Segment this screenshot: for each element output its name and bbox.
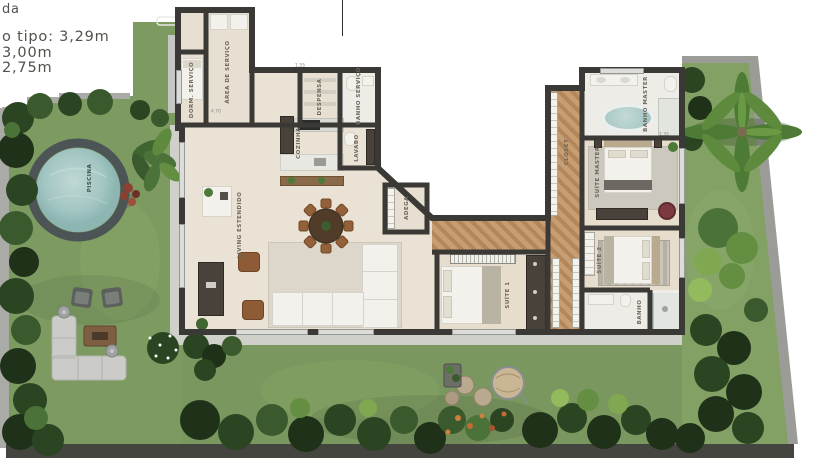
nightstand xyxy=(654,139,662,148)
accent-chair xyxy=(658,202,676,220)
flower-bush xyxy=(147,332,179,364)
label-banho-suite2: BANHO xyxy=(637,300,643,325)
floorplan-scene: DORM. SERVIÇO ÁREA DE SERVIÇO DESPENSA B… xyxy=(0,0,826,460)
label-banho-servico: BANHO SERVIÇO xyxy=(356,67,362,125)
master-desk xyxy=(596,208,648,220)
sofa xyxy=(272,292,364,326)
sofa-seam xyxy=(362,271,398,272)
washer-icon xyxy=(210,14,228,30)
legend-line-2: o tipo: 3,29m xyxy=(2,30,110,46)
shower-drain xyxy=(662,306,668,312)
label-living: LIVING ESTENDIDO xyxy=(237,192,243,259)
plant-icon xyxy=(288,177,295,184)
lavabo-vanity xyxy=(366,129,375,165)
window xyxy=(679,148,685,204)
flower-planter xyxy=(444,364,461,387)
pillow xyxy=(608,150,626,158)
lounge-chair xyxy=(71,287,93,309)
plant-icon xyxy=(204,188,213,197)
wardrobe-knob xyxy=(533,316,537,320)
label-closet: CLOSET xyxy=(564,139,570,166)
headboard xyxy=(652,236,660,284)
closet-shelves xyxy=(550,92,558,216)
legend-line-3: 3,00m xyxy=(2,46,110,62)
lounge-chair xyxy=(101,287,123,309)
label-dorm-servico: DORM. SERVIÇO xyxy=(189,62,195,118)
label-despensa: DESPENSA xyxy=(317,79,323,116)
dimension-text: 1.35 xyxy=(659,133,669,138)
suite1-louver-closet xyxy=(450,254,516,264)
bed-throw xyxy=(482,266,501,324)
dimension-text: 1.55 xyxy=(295,64,305,69)
pool-water xyxy=(36,148,120,232)
window xyxy=(236,329,308,335)
label-banho-master: BANHO MASTER xyxy=(643,76,649,132)
label-area-servico: ÁREA DE SERVIÇO xyxy=(225,40,231,103)
wine-shelf xyxy=(387,188,395,229)
toilet-icon xyxy=(664,76,677,92)
dryer-icon xyxy=(230,14,248,30)
armchair xyxy=(242,300,264,320)
label-adega: ADEGA xyxy=(404,196,410,220)
window xyxy=(179,142,185,198)
window xyxy=(318,329,374,335)
window xyxy=(176,70,182,104)
sink-icon xyxy=(620,77,630,83)
wardrobe-knob xyxy=(533,262,537,266)
pillow xyxy=(642,262,650,280)
plant-icon xyxy=(668,142,678,152)
label-lavabo: LAVABO xyxy=(354,134,360,161)
tv-console xyxy=(198,262,224,316)
island-sink xyxy=(314,158,326,166)
closet-shelves xyxy=(552,258,560,328)
label-piscina: PISCINA xyxy=(87,164,93,192)
pillow xyxy=(443,296,452,318)
tv-device xyxy=(206,282,216,288)
shower-area xyxy=(658,98,680,136)
sofa xyxy=(362,244,398,328)
legend: da o tipo: 3,29m 3,00m 2,75m xyxy=(2,2,110,77)
plant-icon xyxy=(196,318,208,330)
window xyxy=(179,224,185,288)
suite2-shelves xyxy=(584,232,595,276)
window xyxy=(452,329,516,335)
sofa-seam xyxy=(362,299,398,300)
legend-line-1: da xyxy=(2,2,110,17)
headboard xyxy=(604,138,652,147)
sofa-seam xyxy=(332,292,333,326)
decor-icon xyxy=(220,192,228,200)
closet-shelves xyxy=(572,258,580,328)
sofa-seam xyxy=(302,292,303,326)
wardrobe-knob xyxy=(533,290,537,294)
window xyxy=(679,238,685,278)
window xyxy=(600,68,644,74)
dimension-text: 4.70 xyxy=(211,110,221,115)
corridor-floor xyxy=(432,218,548,255)
sink-icon xyxy=(362,76,374,86)
perimeter-wall-bottom xyxy=(6,444,794,458)
plant-icon xyxy=(318,177,325,184)
kitchen-island xyxy=(280,154,344,171)
pillow xyxy=(443,270,452,292)
leader-line xyxy=(342,0,343,36)
pillow xyxy=(642,240,650,258)
label-suite1: SUÍTE 1 xyxy=(505,281,511,308)
vanity xyxy=(588,294,614,305)
fridge-column xyxy=(280,116,294,154)
pillow xyxy=(630,150,648,158)
sink-icon xyxy=(596,77,606,83)
label-suite-master: SUÍTE MASTER xyxy=(595,146,601,197)
legend-line-4: 2,75m xyxy=(2,61,110,77)
perimeter-wall-top-right xyxy=(682,56,752,63)
bed-throw xyxy=(604,236,614,284)
label-cozinha: COZINHA xyxy=(296,127,302,159)
toilet-icon xyxy=(620,294,631,307)
bed-throw xyxy=(604,180,652,190)
label-suite2: SUÍTE 2 xyxy=(597,246,603,273)
dining-set xyxy=(294,194,358,258)
